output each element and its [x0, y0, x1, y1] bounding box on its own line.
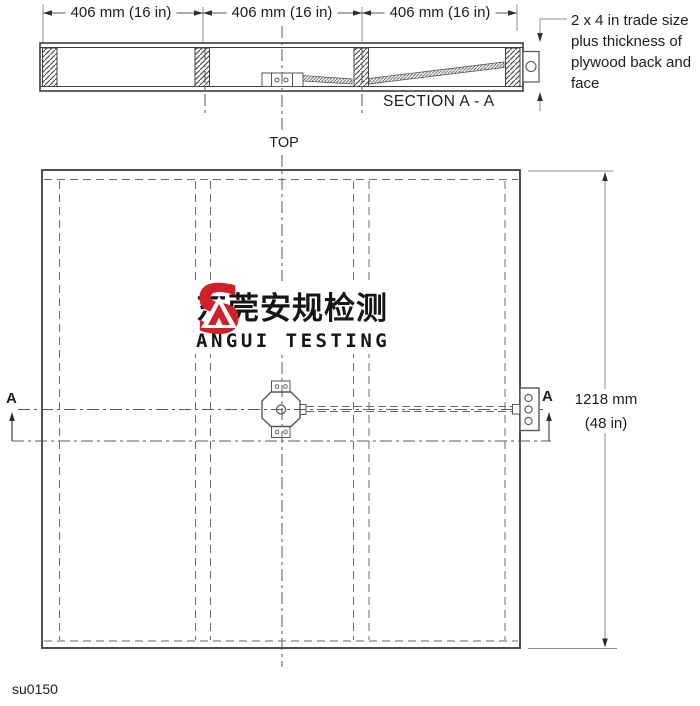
height-dim-label-in: (48 in) [580, 416, 633, 433]
cut-marker-a-right: A [542, 389, 553, 406]
top-label: TOP [269, 136, 299, 152]
technical-drawing-page: 406 mm (16 in) 406 mm (16 in) 406 mm (16… [0, 0, 700, 706]
cable-connector [513, 405, 521, 415]
width-dim-label-3: 406 mm (16 in) [385, 5, 496, 22]
arrowhead [43, 10, 52, 16]
arrowhead [353, 10, 362, 16]
logo-s-mark-icon: S [192, 281, 246, 341]
width-dim-label-1: 406 mm (16 in) [66, 5, 177, 22]
arrowhead [362, 10, 371, 16]
note-line: plywood back and [571, 52, 691, 73]
thickness-dimension [537, 19, 567, 111]
arrowhead [203, 10, 212, 16]
stud-hatch [506, 48, 521, 87]
construction-note: 2 x 4 in trade size plus thickness of pl… [571, 10, 691, 94]
arrowhead [194, 10, 203, 16]
section-view [40, 4, 567, 132]
note-line: 2 x 4 in trade size [571, 10, 691, 31]
note-line: plus thickness of [571, 31, 691, 52]
width-dim-label-2: 406 mm (16 in) [227, 5, 338, 22]
height-dim-label: 1218 mm [570, 392, 643, 409]
stud-hatch [195, 48, 210, 87]
arrowhead [508, 10, 517, 16]
anchor-plate-front [513, 388, 540, 431]
section-label: SECTION A - A [383, 93, 495, 110]
stud-hatch [43, 48, 58, 87]
note-line: face [571, 73, 691, 94]
anchor-plate-hole [526, 62, 536, 72]
front-view [9, 155, 617, 667]
drawing-code: su0150 [12, 682, 58, 697]
cut-marker-a-left: A [6, 391, 17, 408]
angui-testing-logo: S 东莞安规检测 ANGUI TESTING [192, 281, 394, 354]
center-outlet-box [262, 381, 306, 438]
stud-hatch [354, 48, 369, 87]
